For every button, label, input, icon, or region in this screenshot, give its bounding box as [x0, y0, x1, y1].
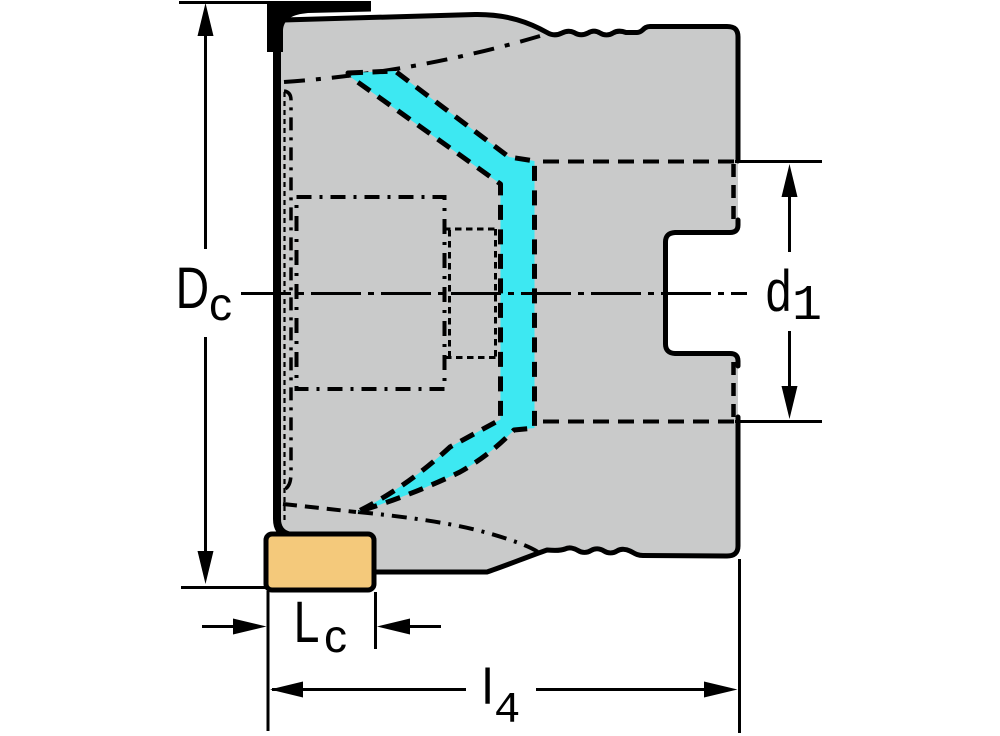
svg-text:4: 4 — [494, 686, 520, 736]
svg-text:D: D — [176, 256, 210, 321]
svg-text:c: c — [209, 278, 232, 330]
svg-text:c: c — [324, 610, 347, 662]
svg-text:L: L — [294, 590, 320, 655]
svg-text:d: d — [766, 259, 792, 324]
svg-text:l: l — [482, 659, 493, 715]
svg-text:1: 1 — [792, 278, 822, 335]
